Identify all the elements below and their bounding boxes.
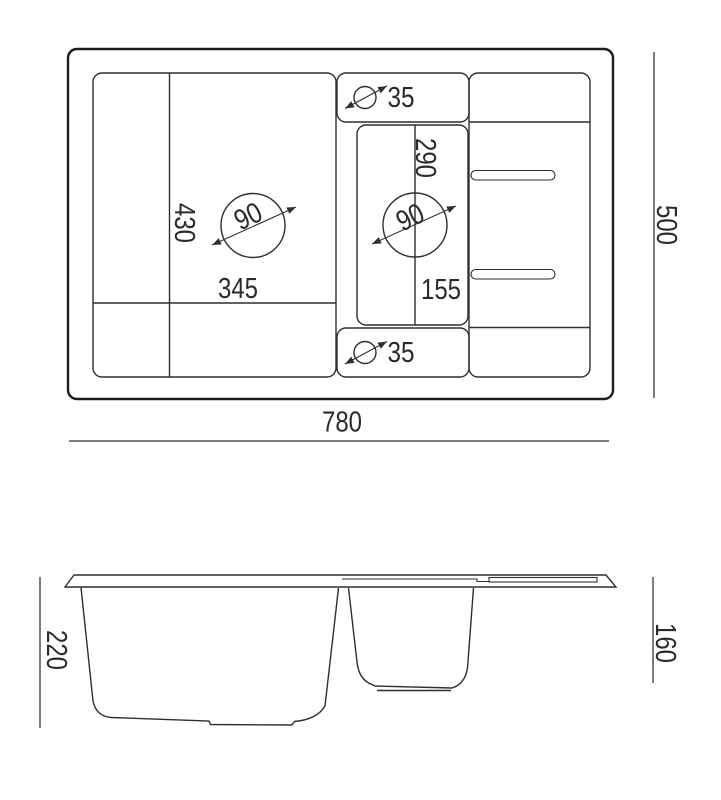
drainboard-edge-profile [489,578,597,583]
small-bowl-lower-dimension-label: 155 [421,274,461,306]
mounting-clip-top [471,171,555,181]
small-bowl-depth-side-label: 160 [649,623,681,663]
tap-hole-bottom-diameter-label: 35 [388,337,415,369]
side-view [40,575,653,728]
small-bowl-upper-dimension-label: 290 [409,138,441,178]
sink-technical-drawing-page: 780 500 430 345 90 90 35 35 290 155 [0,0,721,800]
main-bowl-depth-side-label: 220 [40,630,72,670]
tap-hole-top-diameter-label: 35 [388,82,415,114]
main-bowl-width-label: 345 [218,273,258,305]
side-view-labels: 220 160 [40,623,681,670]
mounting-clip-bottom [471,270,555,280]
overall-width-label: 780 [322,407,362,439]
overall-depth-label: 500 [650,205,682,245]
small-bowl-profile [349,588,474,688]
main-bowl-profile [81,588,339,726]
sink-outer-outline [68,49,613,399]
sink-technical-drawing: 780 500 430 345 90 90 35 35 290 155 [0,0,721,800]
top-view [68,49,654,441]
main-bowl-depth-label: 430 [168,203,200,243]
